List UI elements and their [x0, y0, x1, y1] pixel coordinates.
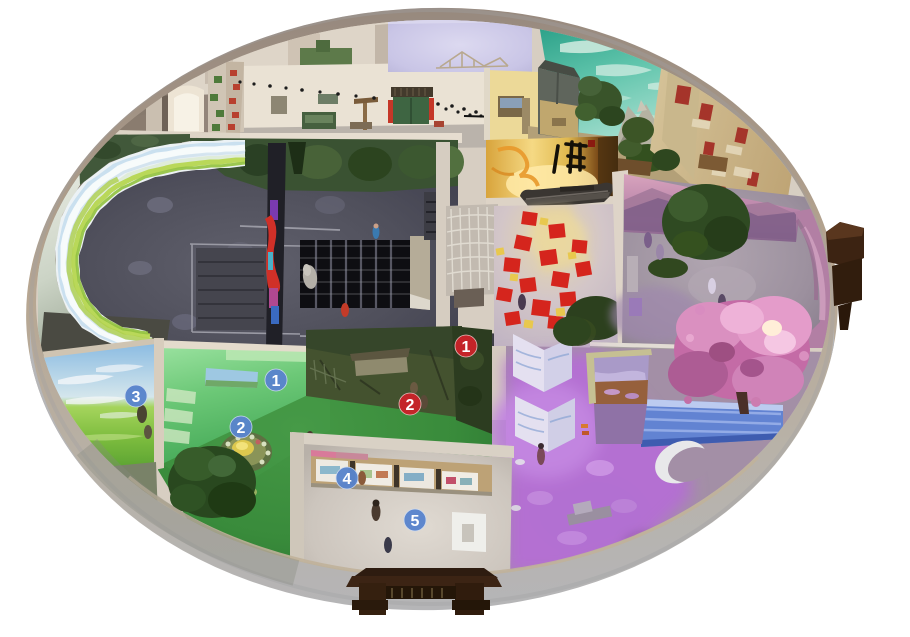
svg-text:4: 4	[343, 471, 352, 488]
svg-text:1: 1	[272, 373, 281, 390]
svg-text:5: 5	[411, 513, 420, 530]
svg-text:1: 1	[462, 339, 471, 356]
svg-text:2: 2	[406, 397, 415, 414]
svg-text:2: 2	[237, 420, 246, 437]
svg-text:3: 3	[132, 389, 141, 406]
